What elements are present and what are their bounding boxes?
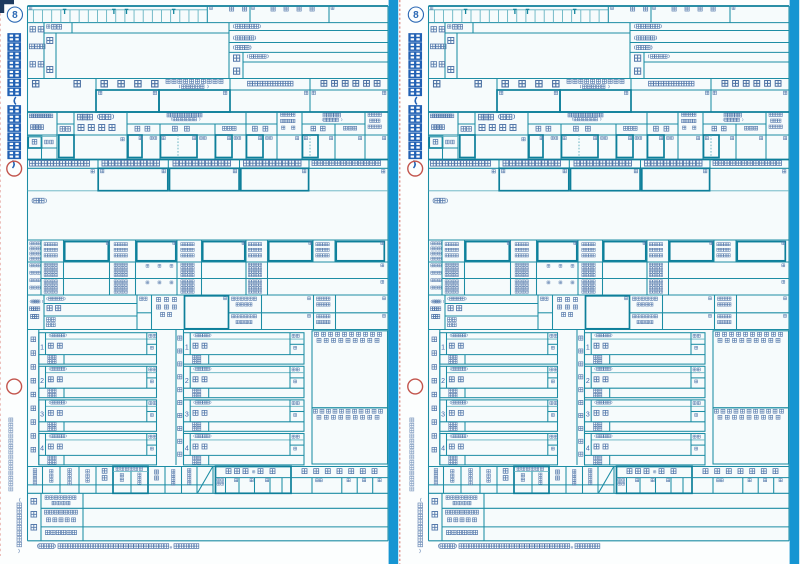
- svg-text:4: 4: [40, 445, 44, 452]
- svg-text:3: 3: [40, 412, 44, 419]
- svg-text:2: 2: [40, 378, 44, 385]
- svg-text:4: 4: [185, 445, 189, 452]
- svg-text:1: 1: [185, 345, 189, 352]
- svg-text:2: 2: [185, 378, 189, 385]
- svg-text:3: 3: [185, 412, 189, 419]
- svg-text:1: 1: [40, 345, 44, 352]
- svg-text:8: 8: [12, 10, 18, 21]
